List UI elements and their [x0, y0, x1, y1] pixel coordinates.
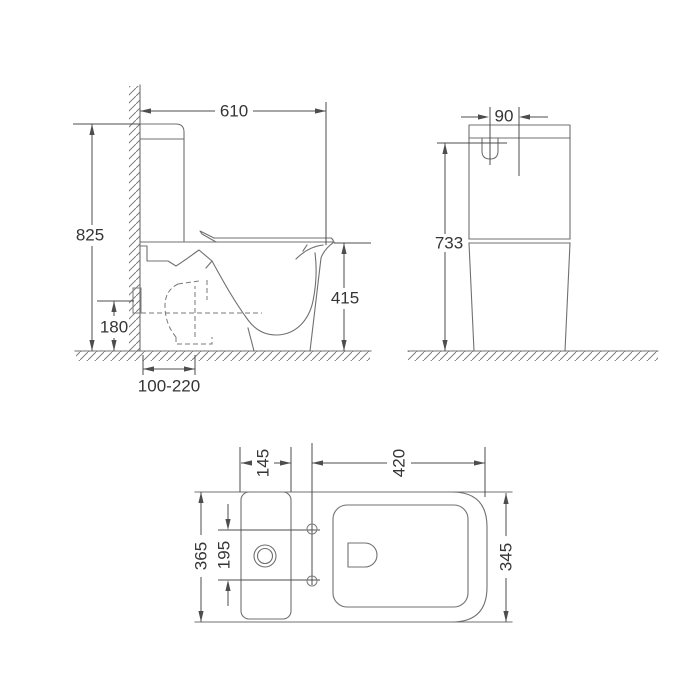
dim-side-width-text: 610 — [220, 102, 248, 121]
dim-top-overall-width: 365 — [192, 492, 211, 622]
dim-top-hole-spacing: 195 — [215, 504, 234, 606]
dim-rear-inlet-offset-text: 90 — [495, 107, 514, 126]
dim-top-bowl-length-text: 420 — [390, 449, 409, 477]
side-view: 610 825 415 180 — [73, 85, 371, 396]
flush-button-inner — [258, 549, 273, 564]
wall-hatch — [129, 86, 140, 351]
top-cistern-outline — [241, 492, 291, 619]
seat-profile — [140, 231, 333, 251]
dim-top-overall-width-text: 365 — [192, 542, 211, 570]
dim-side-seat-height: 415 — [331, 243, 371, 351]
technical-drawing: 610 825 415 180 — [0, 0, 700, 700]
top-view: 145 420 365 195 345 — [192, 443, 516, 622]
dim-side-outlet-height: 180 — [97, 301, 134, 351]
flush-hole — [348, 543, 377, 567]
dim-side-overall-height-text: 825 — [76, 226, 104, 245]
bowl-profile — [140, 242, 334, 351]
dim-side-outlet-height-text: 180 — [100, 318, 128, 337]
floor-hatch — [76, 351, 370, 361]
dim-rear-inlet-offset: 90 — [461, 107, 548, 177]
dim-side-width: 610 — [140, 102, 326, 246]
rear-base-outline — [469, 243, 570, 351]
dim-side-seat-height-text: 415 — [331, 289, 359, 308]
rear-view: 90 733 — [408, 107, 658, 362]
dim-rear-inlet-height: 733 — [435, 143, 507, 351]
dim-top-bowl-width-text: 345 — [497, 543, 516, 571]
dim-top-tank-depth: 145 — [240, 447, 291, 492]
bowl-front-outline — [452, 492, 487, 622]
trap-dashed-outline — [141, 280, 262, 344]
cistern-outline — [140, 124, 184, 242]
dim-top-bowl-width: 345 — [497, 493, 516, 622]
dim-top-tank-depth-text: 145 — [254, 449, 273, 477]
rear-seam-lines — [469, 239, 570, 243]
drawing-canvas: 610 825 415 180 — [0, 0, 700, 700]
rear-floor-hatch — [408, 351, 658, 361]
pedestal-foot-line — [248, 328, 254, 351]
seat-opening-outline — [333, 505, 468, 607]
dim-top-hole-spacing-text: 195 — [215, 541, 234, 569]
dim-side-outlet-setout-text: 100-220 — [138, 377, 200, 396]
dim-top-bowl-length: 420 — [312, 447, 485, 497]
dim-side-outlet-setout: 100-220 — [138, 355, 200, 396]
dim-rear-inlet-height-text: 733 — [435, 234, 463, 253]
